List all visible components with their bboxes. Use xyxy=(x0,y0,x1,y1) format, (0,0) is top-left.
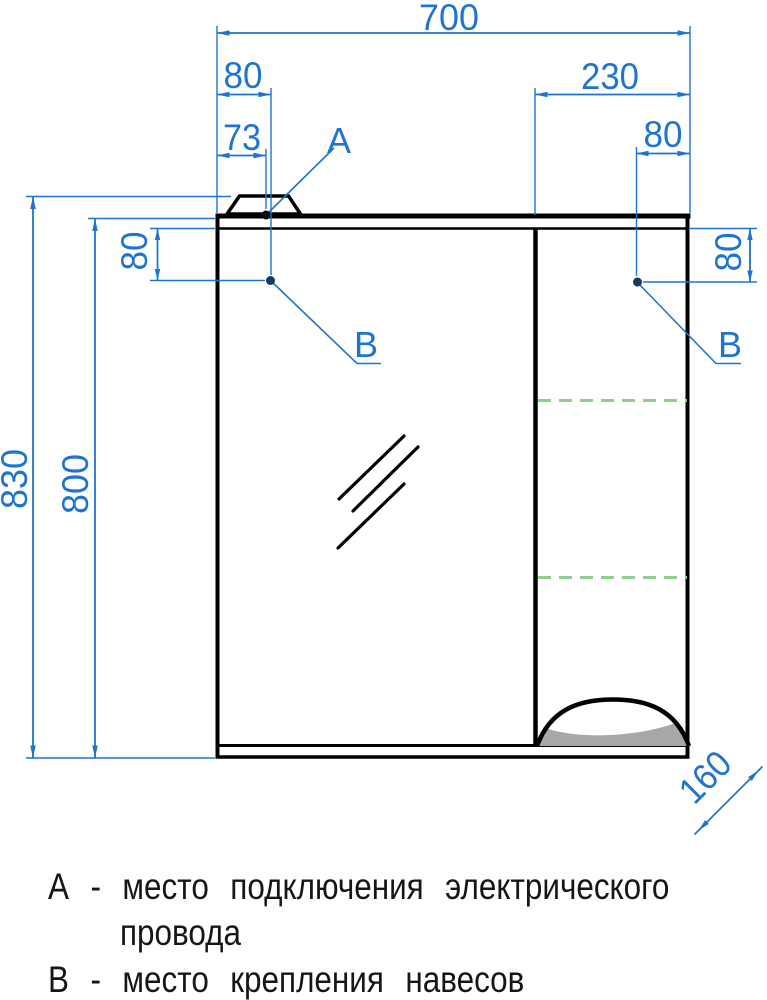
arrowhead xyxy=(678,92,691,98)
dim-label-830: 830 xyxy=(0,449,35,509)
legend-line-b: В - место крепления навесов xyxy=(48,959,524,1000)
drawing-canvas: 700 80 73 230 80 830 800 80 80 160 A B B xyxy=(0,0,767,860)
cabinet-technical-drawing: 700 80 73 230 80 830 800 80 80 160 A B B… xyxy=(0,0,767,1000)
dim-label-80-right: 80 xyxy=(708,233,749,272)
dim-label-160: 160 xyxy=(671,743,740,812)
shelf-lines xyxy=(538,401,687,578)
dim-label-230: 230 xyxy=(581,56,639,97)
arrowhead xyxy=(217,30,230,36)
dim-label-700: 700 xyxy=(419,0,479,38)
legend-line-a: А - место подключения электрического xyxy=(48,866,669,908)
arrowhead xyxy=(30,746,36,759)
dimension-labels: 700 80 73 230 80 830 800 80 80 160 xyxy=(0,0,749,811)
point-a-dot xyxy=(262,211,271,220)
point-b-right-dot xyxy=(633,278,642,287)
dim-label-80-top-right: 80 xyxy=(644,114,683,155)
leader-lines xyxy=(267,148,741,364)
leader-a xyxy=(267,148,334,214)
arrowhead xyxy=(155,229,160,241)
arrowhead xyxy=(155,269,160,281)
arrowhead xyxy=(92,746,98,759)
dim-label-80-top-left: 80 xyxy=(224,55,263,96)
point-label-a: A xyxy=(327,120,351,161)
point-label-b-left: B xyxy=(354,324,378,365)
arrowhead xyxy=(535,92,548,98)
arrowhead xyxy=(678,30,691,36)
legend-line-a-continued: провода xyxy=(120,912,241,954)
dim-label-73: 73 xyxy=(223,117,261,158)
point-label-b-right: B xyxy=(718,324,742,365)
arrowhead xyxy=(30,197,36,210)
mirror-hatch xyxy=(338,436,418,548)
cabinet-outline xyxy=(216,196,696,759)
arrowhead xyxy=(92,219,98,232)
arch-niche-fill xyxy=(520,718,695,750)
dim-label-80-left: 80 xyxy=(114,232,155,271)
point-b-left-dot xyxy=(266,276,275,285)
dim-label-800: 800 xyxy=(55,454,96,514)
mirror-hatch-line xyxy=(339,436,404,499)
